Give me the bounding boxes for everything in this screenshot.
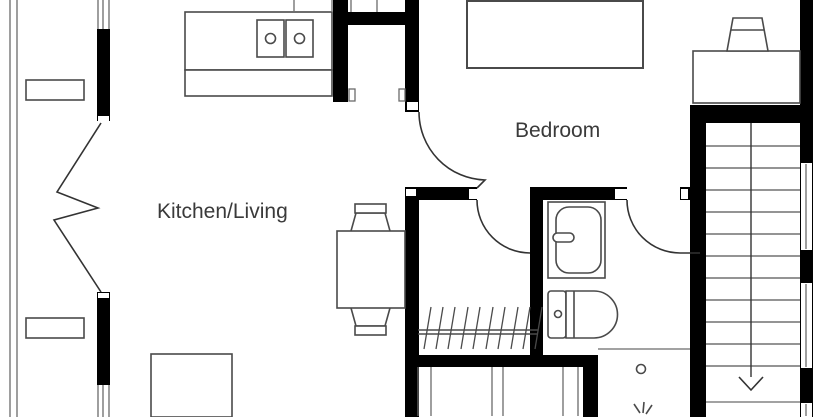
balcony-folding-door <box>54 123 101 292</box>
staircase <box>706 123 800 390</box>
bathroom-door-swing <box>627 200 700 253</box>
cooktop-burner-right <box>286 20 313 57</box>
dining-chair-bottom-back <box>355 326 386 335</box>
floor-plan: Kitchen/Living Bedroom <box>0 0 818 417</box>
shower-drain-icon <box>637 365 646 374</box>
pantry-jamb-right <box>399 89 405 101</box>
toilet-tank <box>548 291 566 338</box>
wall-closet-bottom <box>405 355 598 367</box>
storage-cabinets <box>418 367 578 416</box>
jamb-balcony-top <box>98 116 109 121</box>
dining-chair-top-back <box>355 204 386 213</box>
bed <box>467 1 643 68</box>
planter-box-top <box>26 80 84 100</box>
jamb-closet-door <box>469 189 477 199</box>
stair-treads <box>706 146 800 366</box>
cooktop-burner-left <box>257 20 284 57</box>
jamb-bedroom-door-top <box>407 102 418 110</box>
wall-stair-top <box>690 105 813 123</box>
shower-spray-icon <box>634 402 652 414</box>
floor-plan-drawing: Kitchen/Living Bedroom <box>0 0 818 417</box>
hanger-hatching <box>424 307 542 349</box>
jamb-bath-door <box>615 189 627 199</box>
jamb-balcony-bottom <box>98 293 109 298</box>
wall-left-lower <box>97 292 110 385</box>
balcony-edge <box>10 0 17 417</box>
window-left-top <box>98 0 109 29</box>
bedroom-door-swing <box>419 112 485 188</box>
stair-down-arrow <box>739 377 763 390</box>
window-left-bottom <box>98 385 109 417</box>
desk <box>693 51 800 103</box>
kitchen-counter-front <box>185 70 332 96</box>
wall-shower-left <box>583 355 598 417</box>
kitchen-living-label: Kitchen/Living <box>157 200 288 223</box>
dining-chair-bottom-seat <box>351 308 390 326</box>
desk-chair <box>727 18 768 51</box>
planter-box-bottom <box>26 318 84 338</box>
hanging-rail <box>418 330 538 334</box>
washbasin-faucet-icon <box>553 233 574 242</box>
dining-table <box>337 231 405 308</box>
dining-chair-top-seat <box>351 213 390 231</box>
wall-closet-left <box>405 187 419 417</box>
jamb-bath-door-right <box>681 189 688 199</box>
bedroom-label: Bedroom <box>515 119 600 142</box>
wall-stair-left <box>690 110 706 417</box>
wall-pantry-top <box>348 12 408 25</box>
wall-pantry-left <box>333 0 348 102</box>
wall-kitchen-bedroom-upper <box>405 0 419 112</box>
sofa <box>151 354 232 417</box>
wall-left-upper <box>97 29 110 121</box>
wall-bedroom-bottom-b <box>543 187 627 200</box>
closet-door-swing <box>477 200 530 253</box>
pantry-jamb-left <box>349 89 355 101</box>
jamb-bedroom-door-bottom <box>406 189 416 196</box>
